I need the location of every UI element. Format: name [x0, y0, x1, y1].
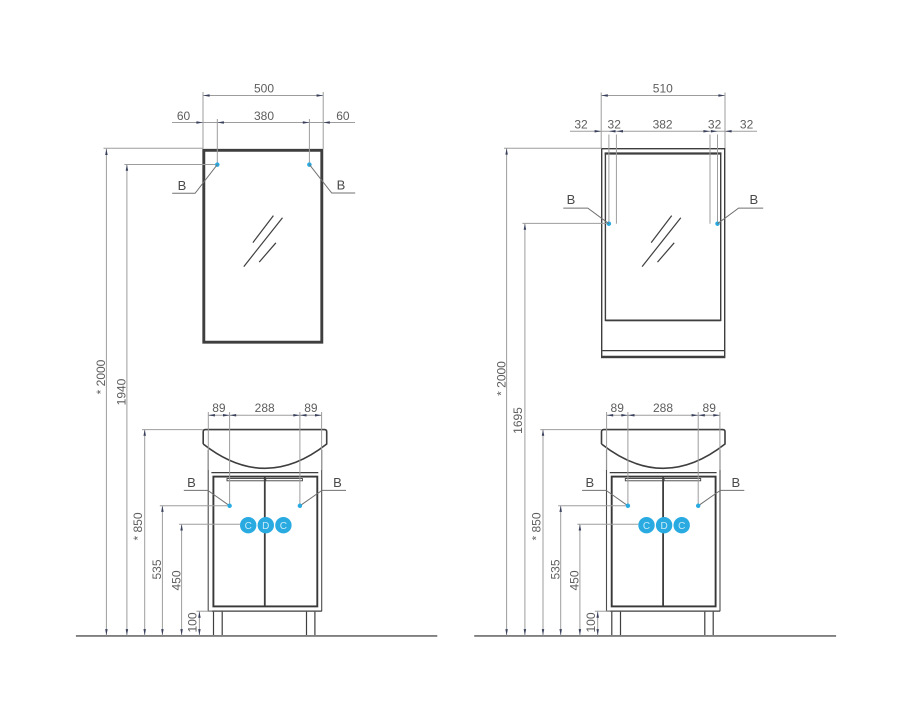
svg-text:32: 32 — [574, 118, 588, 132]
svg-text:450: 450 — [169, 570, 183, 590]
svg-text:B: B — [567, 192, 576, 207]
svg-text:* 850: * 850 — [131, 512, 145, 540]
svg-text:450: 450 — [568, 570, 582, 590]
svg-text:C: C — [643, 521, 650, 532]
svg-text:C: C — [678, 521, 685, 532]
svg-text:D: D — [262, 521, 269, 532]
svg-text:B: B — [333, 475, 342, 490]
svg-text:D: D — [660, 521, 667, 532]
svg-text:1695: 1695 — [511, 407, 525, 434]
svg-text:288: 288 — [653, 401, 673, 415]
svg-text:B: B — [187, 475, 196, 490]
svg-text:B: B — [731, 475, 740, 490]
svg-text:510: 510 — [653, 82, 673, 96]
svg-text:535: 535 — [549, 559, 563, 579]
svg-text:60: 60 — [336, 109, 350, 123]
svg-text:* 2000: * 2000 — [94, 359, 108, 394]
svg-text:B: B — [749, 192, 758, 207]
svg-text:* 850: * 850 — [530, 512, 544, 540]
svg-text:32: 32 — [708, 118, 722, 132]
svg-text:B: B — [585, 475, 594, 490]
svg-text:100: 100 — [584, 612, 598, 632]
svg-text:89: 89 — [304, 401, 318, 415]
svg-text:288: 288 — [255, 401, 275, 415]
svg-text:535: 535 — [150, 559, 164, 579]
svg-text:100: 100 — [186, 612, 200, 632]
svg-text:380: 380 — [254, 109, 274, 123]
svg-text:32: 32 — [740, 118, 754, 132]
svg-text:B: B — [178, 178, 187, 193]
svg-text:32: 32 — [608, 118, 622, 132]
svg-text:89: 89 — [611, 401, 625, 415]
svg-text:* 2000: * 2000 — [494, 361, 508, 396]
svg-text:C: C — [280, 521, 287, 532]
svg-text:89: 89 — [703, 401, 717, 415]
svg-text:382: 382 — [653, 118, 673, 132]
svg-text:C: C — [245, 521, 252, 532]
svg-text:B: B — [337, 177, 346, 192]
svg-text:500: 500 — [254, 82, 274, 96]
svg-text:60: 60 — [177, 109, 191, 123]
svg-text:1940: 1940 — [115, 378, 129, 405]
svg-text:89: 89 — [212, 401, 226, 415]
